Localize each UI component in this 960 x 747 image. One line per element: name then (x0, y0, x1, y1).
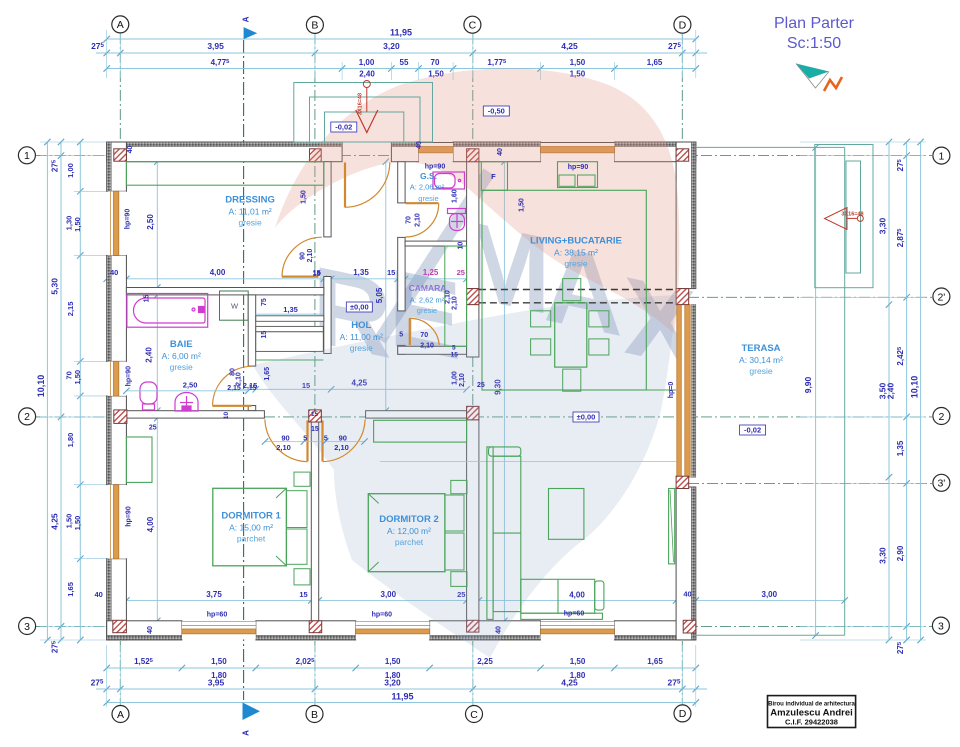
svg-text:1,50: 1,50 (211, 657, 227, 666)
svg-text:2,50: 2,50 (146, 214, 155, 230)
svg-text:1,60: 1,60 (452, 189, 459, 203)
svg-text:G.S.: G.S. (420, 171, 437, 181)
svg-text:1,35: 1,35 (353, 268, 369, 277)
svg-text:10,10: 10,10 (910, 376, 920, 399)
svg-text:5,05: 5,05 (375, 287, 384, 303)
svg-text:15: 15 (144, 295, 151, 303)
svg-text:gresie: gresie (350, 343, 373, 353)
svg-text:1,25: 1,25 (423, 268, 439, 277)
svg-text:15: 15 (451, 351, 459, 358)
svg-text:3,20: 3,20 (384, 678, 401, 688)
svg-text:40: 40 (110, 268, 118, 277)
svg-text:4,00: 4,00 (569, 591, 585, 600)
svg-text:15: 15 (311, 411, 319, 418)
svg-text:9,90: 9,90 (803, 376, 813, 393)
svg-text:90: 90 (281, 434, 289, 443)
svg-text:1,65: 1,65 (647, 58, 663, 67)
svg-text:B: B (311, 709, 318, 721)
svg-text:gresie: gresie (170, 362, 193, 372)
svg-text:hp=60: hp=60 (207, 612, 228, 619)
svg-text:A: A (117, 19, 124, 31)
svg-text:1,50: 1,50 (570, 657, 586, 666)
svg-text:1,50: 1,50 (73, 370, 82, 385)
svg-text:D: D (679, 708, 687, 720)
svg-text:hp=90: hp=90 (125, 366, 132, 387)
svg-text:2,40: 2,40 (359, 70, 375, 79)
svg-text:3X16=48: 3X16=48 (358, 93, 364, 115)
svg-text:Sc:1:50: Sc:1:50 (787, 35, 841, 52)
svg-text:A: 38,15 m²: A: 38,15 m² (554, 248, 598, 258)
svg-text:A: 11,01 m²: A: 11,01 m² (228, 207, 271, 217)
svg-text:10,10: 10,10 (36, 375, 46, 398)
svg-text:A: 2,62 m²: A: 2,62 m² (410, 296, 445, 305)
svg-text:1,50: 1,50 (385, 657, 401, 666)
svg-text:A: 12,00 m²: A: 12,00 m² (387, 526, 431, 536)
svg-text:10: 10 (458, 242, 465, 250)
svg-text:15: 15 (261, 331, 268, 339)
svg-text:15: 15 (311, 426, 319, 433)
svg-text:1: 1 (24, 150, 30, 162)
svg-text:-0,50: -0,50 (488, 107, 505, 116)
svg-text:2,25: 2,25 (477, 657, 493, 666)
svg-text:10: 10 (223, 412, 230, 420)
svg-text:2,50: 2,50 (183, 381, 198, 390)
svg-text:4,00: 4,00 (210, 268, 226, 277)
svg-text:2,10: 2,10 (452, 296, 459, 310)
svg-text:3,00: 3,00 (762, 590, 778, 599)
svg-text:2,90: 2,90 (896, 545, 905, 561)
svg-text:2,10: 2,10 (236, 372, 243, 386)
svg-text:BAIE: BAIE (170, 339, 193, 350)
svg-text:gresie: gresie (417, 306, 437, 315)
svg-text:1,50: 1,50 (73, 217, 82, 232)
svg-text:3,30: 3,30 (878, 217, 888, 234)
svg-text:1,50: 1,50 (570, 58, 586, 67)
svg-text:1,50: 1,50 (73, 516, 82, 531)
svg-text:2: 2 (24, 411, 30, 423)
svg-text:A: A (242, 16, 251, 22)
svg-text:F: F (491, 172, 496, 181)
svg-text:5,30: 5,30 (50, 278, 60, 295)
svg-text:15: 15 (313, 271, 321, 278)
svg-text:C.I.F. 29422038: C.I.F. 29422038 (785, 718, 838, 727)
svg-text:2': 2' (937, 291, 945, 303)
svg-text:1,65: 1,65 (264, 367, 271, 381)
svg-text:parchet: parchet (237, 534, 266, 544)
svg-text:3X16=48: 3X16=48 (841, 212, 863, 218)
svg-text:1,00: 1,00 (452, 371, 459, 385)
svg-text:1,65: 1,65 (647, 657, 663, 666)
svg-text:25: 25 (457, 268, 465, 277)
svg-text:11,95: 11,95 (391, 692, 413, 702)
svg-text:DORMITOR 2: DORMITOR 2 (379, 514, 438, 525)
svg-text:A: 15,00 m²: A: 15,00 m² (229, 523, 273, 533)
svg-text:3,95: 3,95 (208, 678, 225, 688)
svg-text:55: 55 (400, 58, 409, 67)
svg-text:A: 2,06 m²: A: 2,06 m² (410, 183, 445, 192)
svg-text:hp=90: hp=90 (125, 209, 132, 230)
svg-text:40: 40 (496, 626, 503, 634)
svg-text:hp=90: hp=90 (425, 164, 446, 171)
svg-text:gresie: gresie (418, 194, 438, 203)
svg-text:25: 25 (477, 382, 485, 389)
svg-text:70: 70 (406, 216, 413, 224)
svg-text:1: 1 (938, 150, 944, 162)
svg-text:hp=60: hp=60 (372, 612, 393, 619)
svg-text:3,30: 3,30 (878, 547, 888, 564)
svg-text:hp=90: hp=90 (568, 164, 589, 171)
svg-text:2,10: 2,10 (276, 443, 291, 452)
svg-text:75: 75 (261, 298, 268, 306)
svg-text:W: W (231, 301, 239, 310)
svg-text:gresie: gresie (564, 259, 587, 269)
svg-text:5: 5 (303, 436, 307, 443)
svg-text:TERASA: TERASA (741, 343, 780, 354)
svg-text:2,10: 2,10 (334, 443, 349, 452)
svg-text:1,35: 1,35 (283, 305, 298, 314)
svg-text:±0,00: ±0,00 (350, 303, 369, 312)
svg-text:11,95: 11,95 (390, 28, 412, 38)
svg-text:DORMITOR 1: DORMITOR 1 (221, 511, 281, 522)
svg-text:40: 40 (127, 146, 134, 154)
svg-text:4,00: 4,00 (146, 516, 155, 532)
svg-text:A: A (117, 709, 124, 721)
svg-text:-0,02: -0,02 (335, 123, 352, 132)
svg-text:CAMARA: CAMARA (409, 283, 447, 293)
svg-text:±0,00: ±0,00 (577, 413, 596, 422)
svg-text:2,10: 2,10 (445, 290, 452, 304)
svg-text:2,10: 2,10 (415, 213, 422, 227)
svg-text:5: 5 (399, 331, 403, 338)
svg-text:15: 15 (387, 268, 395, 277)
svg-text:A: 6,00 m²: A: 6,00 m² (162, 351, 201, 361)
svg-text:1,50: 1,50 (301, 190, 308, 204)
svg-text:parchet: parchet (395, 537, 424, 547)
svg-text:3,75: 3,75 (206, 590, 222, 599)
svg-text:C: C (469, 20, 477, 32)
svg-text:40: 40 (683, 590, 691, 599)
svg-text:1,00: 1,00 (66, 163, 75, 178)
svg-text:HOL: HOL (351, 320, 371, 331)
svg-text:-0,02: -0,02 (744, 426, 761, 435)
svg-text:1,00: 1,00 (359, 58, 375, 67)
svg-text:70: 70 (431, 58, 440, 67)
svg-text:4,25: 4,25 (561, 678, 578, 688)
svg-text:2,15: 2,15 (66, 302, 75, 317)
svg-text:2,10: 2,10 (307, 249, 314, 263)
svg-text:2,40: 2,40 (886, 382, 896, 399)
svg-text:90: 90 (339, 434, 347, 443)
svg-text:1,50: 1,50 (519, 198, 526, 212)
svg-text:15: 15 (299, 590, 307, 599)
svg-text:1,35: 1,35 (896, 440, 905, 456)
svg-text:gresie: gresie (239, 218, 262, 228)
svg-text:2,10: 2,10 (420, 343, 434, 350)
svg-text:hp=90: hp=90 (126, 506, 133, 527)
svg-text:A: A (242, 730, 251, 736)
svg-text:gresie: gresie (749, 366, 772, 376)
svg-text:2: 2 (938, 411, 944, 423)
svg-text:40: 40 (95, 590, 103, 599)
svg-text:Plan Parter: Plan Parter (774, 15, 855, 32)
svg-text:DRESSING: DRESSING (225, 195, 275, 206)
svg-text:70: 70 (420, 332, 428, 339)
svg-text:1,80: 1,80 (66, 433, 75, 448)
svg-text:3: 3 (938, 620, 944, 632)
svg-text:B: B (311, 20, 318, 32)
svg-text:4,25: 4,25 (50, 513, 60, 530)
svg-text:2,40: 2,40 (145, 347, 154, 363)
svg-text:C: C (470, 709, 478, 721)
svg-text:2,10: 2,10 (459, 373, 466, 387)
svg-text:40: 40 (416, 141, 423, 149)
svg-text:A: 30,14 m²: A: 30,14 m² (739, 355, 783, 365)
svg-text:hp=60: hp=60 (564, 611, 585, 618)
svg-text:5: 5 (324, 436, 328, 443)
svg-text:hp=0: hp=0 (668, 382, 675, 399)
svg-text:D: D (679, 20, 687, 32)
svg-text:3,20: 3,20 (383, 41, 400, 51)
svg-text:3,95: 3,95 (207, 41, 224, 51)
svg-text:40: 40 (147, 626, 154, 634)
svg-text:40: 40 (497, 148, 504, 156)
svg-text:25: 25 (149, 425, 157, 432)
svg-text:LIVING+BUCATARIE: LIVING+BUCATARIE (530, 236, 622, 247)
svg-text:3': 3' (937, 478, 945, 490)
svg-text:1,65: 1,65 (66, 582, 75, 597)
svg-text:90: 90 (299, 252, 306, 260)
svg-text:4,25: 4,25 (561, 41, 578, 51)
svg-text:3: 3 (24, 621, 30, 633)
svg-text:A: 11,00 m²: A: 11,00 m² (340, 332, 383, 342)
